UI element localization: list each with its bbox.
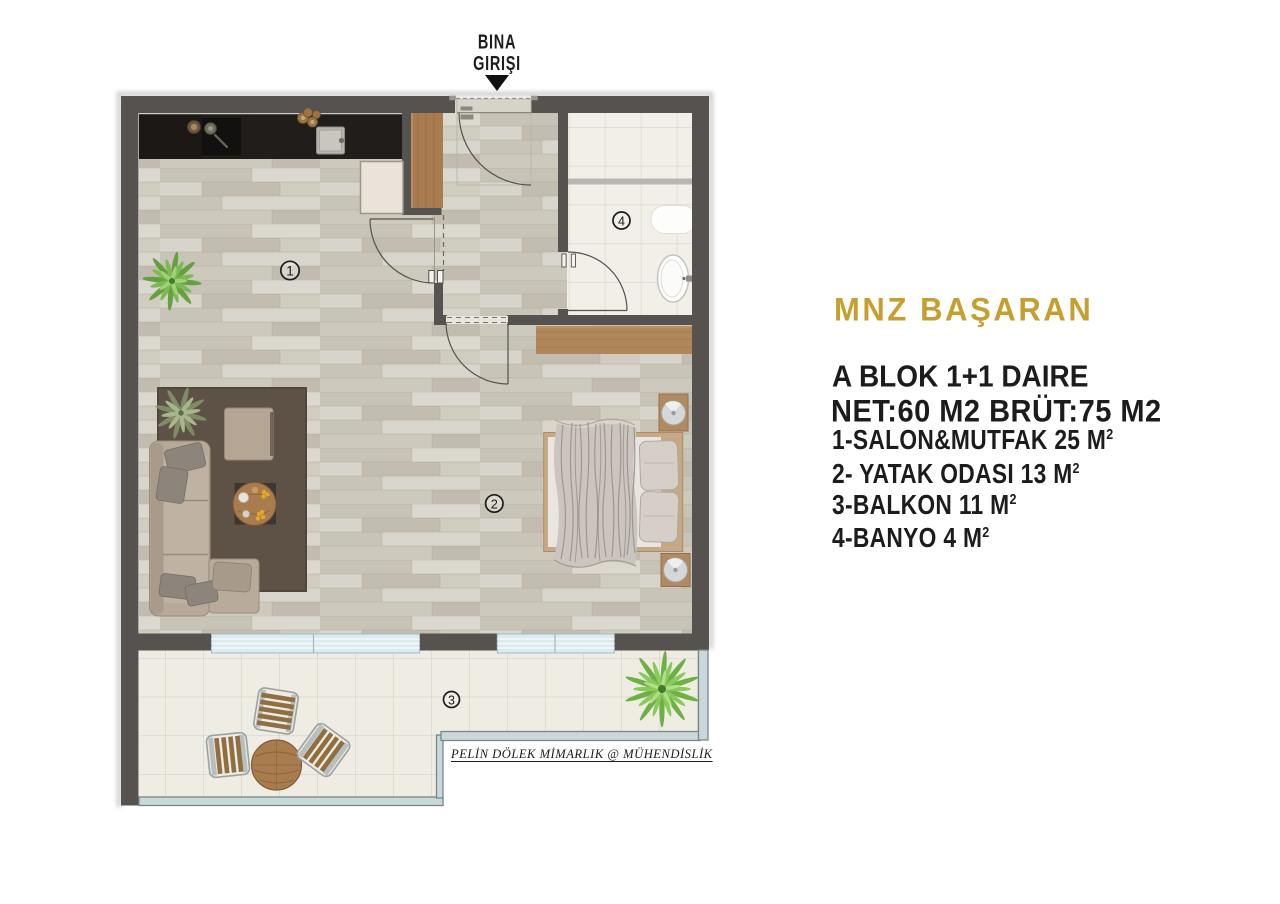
svg-text:1: 1 <box>286 264 294 279</box>
svg-text:2: 2 <box>491 497 498 512</box>
svg-text:4: 4 <box>618 215 625 229</box>
svg-text:3: 3 <box>448 693 455 707</box>
